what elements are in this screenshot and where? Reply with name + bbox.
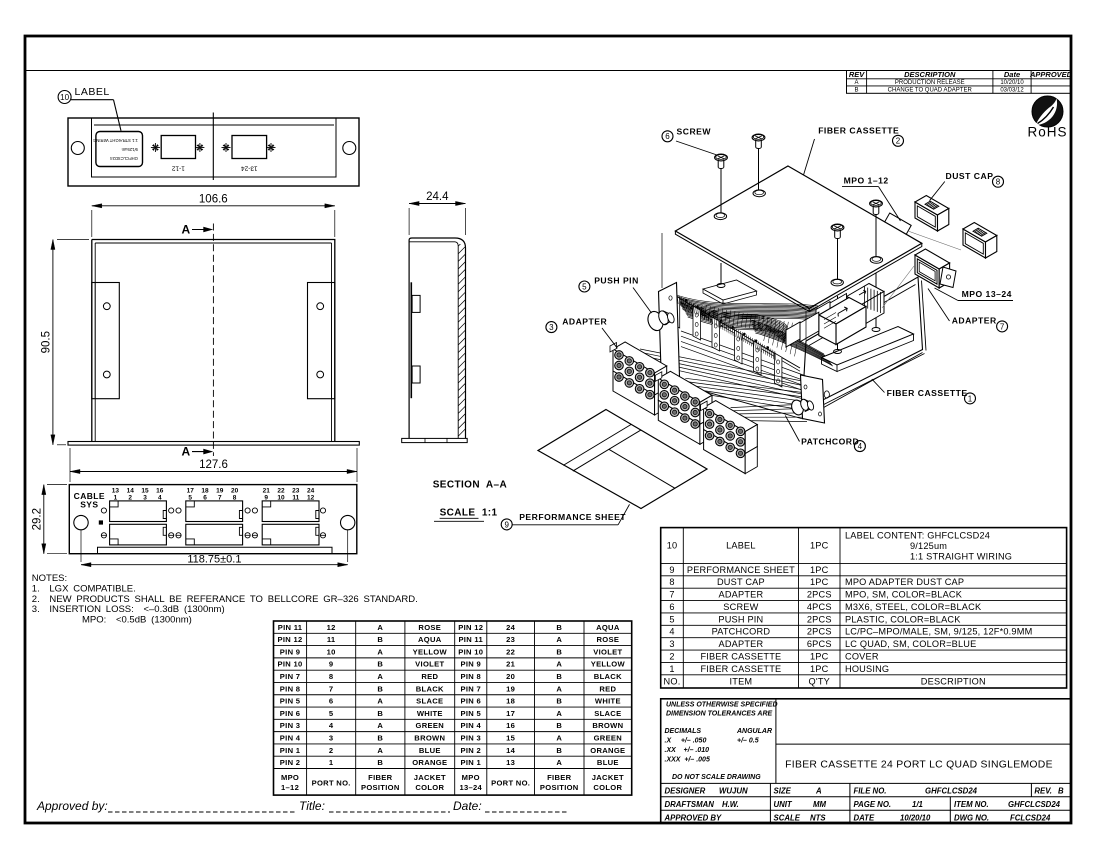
- svg-text:FIBER CASSETTE: FIBER CASSETTE: [700, 664, 781, 674]
- svg-text:A: A: [182, 445, 191, 459]
- svg-text:21: 21: [506, 660, 516, 669]
- svg-text:GREEN: GREEN: [416, 721, 445, 730]
- svg-text:PIN 3: PIN 3: [280, 721, 301, 730]
- svg-text:PLASTIC, COLOR=BLACK: PLASTIC, COLOR=BLACK: [845, 614, 961, 624]
- svg-text:COLOR: COLOR: [593, 783, 622, 792]
- svg-text:REV: REV: [849, 70, 865, 79]
- svg-text:MPO: MPO: [462, 773, 480, 782]
- svg-text:6: 6: [665, 132, 670, 141]
- svg-text:GHFCLCSD24: GHFCLCSD24: [925, 787, 978, 796]
- svg-text:JACKET: JACKET: [414, 773, 446, 782]
- svg-text:1/1: 1/1: [912, 800, 923, 809]
- svg-text:2PCS: 2PCS: [807, 614, 832, 624]
- svg-text:9: 9: [669, 565, 674, 575]
- svg-text:24: 24: [307, 487, 315, 494]
- svg-text:ADAPTER: ADAPTER: [719, 590, 764, 600]
- svg-text:PIN 4: PIN 4: [461, 721, 482, 730]
- svg-text:15: 15: [141, 487, 149, 494]
- svg-text:PAGE NO.: PAGE NO.: [854, 800, 892, 809]
- svg-text:PIN 9: PIN 9: [280, 647, 301, 656]
- svg-text:RoHS: RoHS: [1027, 125, 1067, 140]
- svg-text:B: B: [377, 635, 383, 644]
- svg-text:16: 16: [506, 721, 515, 730]
- svg-text:ANGULAR: ANGULAR: [736, 728, 772, 735]
- svg-text:4PCS: 4PCS: [807, 602, 832, 612]
- svg-text:B: B: [556, 672, 562, 681]
- svg-text:8: 8: [996, 178, 1001, 187]
- svg-text:03/03/12: 03/03/12: [1000, 88, 1024, 94]
- svg-text:17: 17: [187, 487, 195, 494]
- svg-text:A: A: [556, 733, 562, 742]
- svg-text:6: 6: [329, 697, 334, 706]
- svg-text:SYS: SYS: [80, 500, 98, 510]
- svg-text:SECTION A–A: SECTION A–A: [433, 480, 507, 491]
- svg-text:PATCHCORD: PATCHCORD: [712, 627, 771, 637]
- svg-text:2. NEW PRODUCTS SHALL BE REFE: 2. NEW PRODUCTS SHALL BE REFERANCE TO BE…: [32, 594, 418, 605]
- svg-text:PIN 12: PIN 12: [458, 623, 483, 632]
- svg-text:M3X6, STEEL, COLOR=BLACK: M3X6, STEEL, COLOR=BLACK: [845, 602, 982, 612]
- svg-text:B: B: [556, 623, 562, 632]
- svg-text:14: 14: [506, 746, 516, 755]
- svg-text:13: 13: [506, 758, 515, 767]
- svg-text:12: 12: [327, 623, 336, 632]
- svg-text:11: 11: [292, 494, 299, 501]
- svg-text:NOTES:: NOTES:: [32, 573, 67, 584]
- svg-text:BLUE: BLUE: [419, 746, 441, 755]
- svg-text:1PC: 1PC: [810, 541, 829, 551]
- svg-text:23: 23: [506, 635, 515, 644]
- svg-text:1-12: 1-12: [172, 165, 185, 172]
- svg-text:A: A: [377, 697, 383, 706]
- svg-text:WUJUN: WUJUN: [719, 787, 748, 796]
- svg-text:ROSE: ROSE: [418, 623, 441, 632]
- svg-text:SCREW: SCREW: [677, 127, 712, 137]
- svg-text:A: A: [377, 672, 383, 681]
- svg-text:1:1 STRAIGHT WIRING: 1:1 STRAIGHT WIRING: [93, 138, 138, 143]
- svg-text:B: B: [556, 721, 562, 730]
- svg-text:H.W.: H.W.: [722, 800, 739, 809]
- svg-text:10/20/10: 10/20/10: [900, 813, 931, 822]
- svg-text:ADAPTER: ADAPTER: [719, 639, 764, 649]
- svg-text:MPO, SM, COLOR=BLACK: MPO, SM, COLOR=BLACK: [845, 590, 963, 600]
- svg-text:7: 7: [1000, 322, 1005, 331]
- svg-text:POSITION: POSITION: [540, 783, 579, 792]
- svg-text:4: 4: [858, 442, 863, 451]
- svg-text:PERFORMANCE SHEET: PERFORMANCE SHEET: [519, 512, 626, 522]
- svg-text:.XX +/– .010: .XX +/– .010: [665, 747, 710, 754]
- svg-text:LC QUAD, SM, COLOR=BLUE: LC QUAD, SM, COLOR=BLUE: [845, 639, 976, 649]
- svg-text:Date:: Date:: [453, 799, 482, 813]
- svg-text:1–12: 1–12: [281, 783, 299, 792]
- svg-text:8: 8: [669, 577, 674, 587]
- svg-text:PORT NO.: PORT NO.: [491, 778, 530, 787]
- svg-text:24: 24: [506, 623, 516, 632]
- svg-text:23: 23: [292, 487, 300, 494]
- svg-text:COLOR: COLOR: [415, 783, 444, 792]
- svg-text:AQUA: AQUA: [418, 635, 442, 644]
- svg-text:B: B: [377, 733, 383, 742]
- svg-text:PIN 6: PIN 6: [280, 709, 301, 718]
- svg-text:B: B: [377, 709, 383, 718]
- svg-text:Date: Date: [1004, 70, 1020, 79]
- svg-text:YELLOW: YELLOW: [591, 660, 626, 669]
- svg-text:BLUE: BLUE: [597, 758, 619, 767]
- svg-text:FCLCSD24: FCLCSD24: [1010, 813, 1051, 822]
- svg-text:18: 18: [506, 697, 515, 706]
- svg-text:A: A: [556, 684, 562, 693]
- svg-text:PIN 2: PIN 2: [280, 758, 301, 767]
- svg-text:GREEN: GREEN: [594, 733, 623, 742]
- svg-text:COVER: COVER: [845, 651, 879, 661]
- svg-text:MPO 13–24: MPO 13–24: [962, 289, 1012, 299]
- svg-text:UNIT: UNIT: [774, 800, 793, 809]
- svg-text:RED: RED: [421, 672, 438, 681]
- svg-text:DESCRIPTION: DESCRIPTION: [904, 70, 956, 79]
- svg-text:CHANGE TO QUAD ADAPTER: CHANGE TO QUAD ADAPTER: [888, 88, 973, 94]
- svg-text:GHFCLCSD24: GHFCLCSD24: [1008, 800, 1061, 809]
- svg-text:18: 18: [201, 487, 209, 494]
- svg-text:PUSH PIN: PUSH PIN: [594, 276, 639, 286]
- svg-text:B: B: [1058, 787, 1064, 796]
- svg-text:118.75±0.1: 118.75±0.1: [187, 554, 241, 566]
- svg-text:PORT NO.: PORT NO.: [312, 778, 351, 787]
- svg-text:2: 2: [896, 137, 901, 146]
- svg-text:8: 8: [329, 672, 334, 681]
- svg-text:FILE NO.: FILE NO.: [854, 787, 887, 796]
- svg-text:JACKET: JACKET: [592, 773, 624, 782]
- svg-text:3: 3: [549, 323, 554, 332]
- svg-text:MPO ADAPTER DUST CAP: MPO ADAPTER DUST CAP: [845, 577, 964, 587]
- svg-text:10: 10: [60, 93, 69, 102]
- svg-text:PIN 6: PIN 6: [461, 697, 482, 706]
- svg-text:13–24: 13–24: [459, 783, 482, 792]
- svg-text:10: 10: [667, 541, 678, 551]
- svg-text:4: 4: [329, 721, 334, 730]
- svg-text:3. INSERTION LOSS: <–0.3dB (: 3. INSERTION LOSS: <–0.3dB (1300nm): [32, 604, 225, 615]
- svg-text:PIN 12: PIN 12: [278, 635, 303, 644]
- svg-text:NTS: NTS: [810, 813, 826, 822]
- svg-text:B: B: [377, 684, 383, 693]
- svg-text:PIN 10: PIN 10: [278, 660, 303, 669]
- svg-text:20: 20: [506, 672, 515, 681]
- svg-text:9: 9: [504, 520, 509, 529]
- svg-text:4: 4: [669, 627, 674, 637]
- svg-text:B: B: [377, 758, 383, 767]
- svg-text:ITEM NO.: ITEM NO.: [954, 800, 989, 809]
- svg-text:3: 3: [669, 639, 674, 649]
- svg-text:.X +/– .050: .X +/– .050: [665, 738, 707, 745]
- svg-text:9: 9: [264, 494, 268, 501]
- svg-text:FIBER CASSETTE: FIBER CASSETTE: [700, 651, 781, 661]
- svg-text:5: 5: [329, 709, 334, 718]
- svg-text:13-24: 13-24: [241, 165, 258, 172]
- svg-text:1:1 STRAIGHT WIRING: 1:1 STRAIGHT WIRING: [910, 552, 1012, 562]
- svg-text:B: B: [556, 647, 562, 656]
- svg-text:90.5: 90.5: [41, 331, 53, 353]
- svg-text:FIBER CASSETTE: FIBER CASSETTE: [818, 125, 899, 135]
- svg-text:PIN 4: PIN 4: [280, 733, 301, 742]
- svg-text:A: A: [556, 635, 562, 644]
- svg-text:LABEL: LABEL: [726, 541, 756, 551]
- svg-text:ADAPTER: ADAPTER: [952, 316, 997, 326]
- svg-text:9: 9: [329, 660, 334, 669]
- svg-text:1: 1: [968, 394, 973, 403]
- svg-text:7: 7: [218, 494, 222, 501]
- svg-text:A: A: [855, 80, 859, 86]
- svg-text:PIN 11: PIN 11: [278, 623, 303, 632]
- svg-text:DRAFTSMAN: DRAFTSMAN: [665, 800, 715, 809]
- svg-text:DIMENSION TOLERANCES ARE: DIMENSION TOLERANCES ARE: [666, 711, 773, 718]
- svg-text:VIOLET: VIOLET: [593, 647, 622, 656]
- svg-text:9/125um: 9/125um: [121, 147, 138, 152]
- svg-text:16: 16: [156, 487, 164, 494]
- svg-text:24.4: 24.4: [426, 191, 449, 203]
- svg-text:ROSE: ROSE: [596, 635, 619, 644]
- svg-text:2: 2: [329, 746, 334, 755]
- svg-text:MM: MM: [813, 800, 826, 809]
- svg-text:A: A: [556, 758, 562, 767]
- svg-text:APPROVED BY: APPROVED BY: [664, 813, 723, 822]
- svg-text:19: 19: [216, 487, 224, 494]
- svg-text:SLACE: SLACE: [594, 709, 621, 718]
- svg-text:PIN 3: PIN 3: [461, 733, 482, 742]
- svg-text:2PCS: 2PCS: [807, 590, 832, 600]
- svg-text:MPO: <0.5dB (1300nm): MPO: <0.5dB (1300nm): [82, 615, 192, 626]
- svg-text:PRODUCTION RELEASE: PRODUCTION RELEASE: [895, 80, 965, 86]
- svg-text:PIN 9: PIN 9: [461, 660, 482, 669]
- svg-text:PIN 5: PIN 5: [280, 697, 301, 706]
- svg-text:VIOLET: VIOLET: [415, 660, 444, 669]
- svg-text:6PCS: 6PCS: [807, 639, 832, 649]
- svg-text:1PC: 1PC: [810, 577, 829, 587]
- svg-text:2: 2: [128, 494, 132, 501]
- svg-text:PIN 8: PIN 8: [461, 672, 482, 681]
- svg-text:FIBER CASSETTE 24 PORT LC QUAD: FIBER CASSETTE 24 PORT LC QUAD SINGLEMOD…: [785, 760, 1053, 771]
- svg-text:3: 3: [143, 494, 147, 501]
- svg-text:SCALE 1:1: SCALE 1:1: [440, 508, 498, 519]
- svg-text:FIBER: FIBER: [547, 773, 571, 782]
- svg-text:106.6: 106.6: [199, 193, 228, 205]
- svg-text:3: 3: [329, 733, 334, 742]
- svg-text:2PCS: 2PCS: [807, 627, 832, 637]
- svg-text:DESCRIPTION: DESCRIPTION: [921, 677, 986, 687]
- svg-text:DWG NO.: DWG NO.: [954, 813, 989, 822]
- svg-text:DECIMALS: DECIMALS: [665, 728, 702, 735]
- svg-text:5: 5: [188, 494, 192, 501]
- svg-text:A: A: [377, 746, 383, 755]
- svg-text:LABEL CONTENT: GHFCLCSD24: LABEL CONTENT: GHFCLCSD24: [845, 531, 990, 541]
- svg-text:PIN 8: PIN 8: [280, 684, 301, 693]
- svg-text:11: 11: [327, 635, 336, 644]
- svg-text:RED: RED: [599, 684, 616, 693]
- svg-text:19: 19: [506, 684, 515, 693]
- svg-text:Q'TY: Q'TY: [809, 677, 830, 687]
- svg-text:1PC: 1PC: [810, 664, 829, 674]
- svg-text:5: 5: [669, 614, 674, 624]
- svg-text:WHITE: WHITE: [595, 697, 621, 706]
- svg-text:SCALE: SCALE: [774, 813, 801, 822]
- svg-text:14: 14: [127, 487, 135, 494]
- svg-text:10: 10: [277, 494, 285, 501]
- svg-text:PIN 5: PIN 5: [461, 709, 482, 718]
- svg-text:13: 13: [112, 487, 120, 494]
- svg-text:1. LGX COMPATIBLE.: 1. LGX COMPATIBLE.: [32, 583, 136, 594]
- svg-text:PIN 10: PIN 10: [458, 647, 483, 656]
- svg-text:SLACE: SLACE: [416, 697, 443, 706]
- svg-text:LC/PC–MPO/MALE, SM, 9/125, 12F: LC/PC–MPO/MALE, SM, 9/125, 12F*0.9MM: [845, 627, 1032, 637]
- svg-text:SCREW: SCREW: [723, 602, 758, 612]
- svg-text:A: A: [182, 223, 191, 237]
- svg-text:POSITION: POSITION: [361, 783, 400, 792]
- svg-text:SIZE: SIZE: [774, 787, 792, 796]
- svg-text:21: 21: [263, 487, 271, 494]
- svg-text:2: 2: [669, 651, 674, 661]
- svg-text:YELLOW: YELLOW: [413, 647, 448, 656]
- svg-text:HOUSING: HOUSING: [845, 664, 889, 674]
- svg-text:WHITE: WHITE: [417, 709, 443, 718]
- svg-text:FIBER: FIBER: [368, 773, 392, 782]
- svg-text:GHFCLCSD24: GHFCLCSD24: [110, 156, 138, 161]
- svg-text:10/20/10: 10/20/10: [1000, 80, 1024, 86]
- svg-text:20: 20: [231, 487, 239, 494]
- svg-text:9/125um: 9/125um: [910, 541, 947, 551]
- svg-text:DO NOT SCALE DRAWING: DO NOT SCALE DRAWING: [672, 774, 761, 781]
- svg-text:A: A: [556, 660, 562, 669]
- svg-text:12: 12: [307, 494, 315, 501]
- svg-text:LABEL: LABEL: [75, 86, 110, 98]
- svg-text:29.2: 29.2: [32, 508, 44, 530]
- svg-text:PIN 7: PIN 7: [461, 684, 482, 693]
- svg-text:FIBER CASSETTE: FIBER CASSETTE: [887, 388, 968, 398]
- svg-text:PIN 2: PIN 2: [461, 746, 482, 755]
- svg-text:BLACK: BLACK: [594, 672, 622, 681]
- svg-text:4: 4: [158, 494, 162, 501]
- svg-text:1PC: 1PC: [810, 651, 829, 661]
- svg-text:B: B: [377, 660, 383, 669]
- svg-text:A: A: [377, 623, 383, 632]
- svg-text:ITEM: ITEM: [730, 677, 753, 687]
- svg-text:PIN 1: PIN 1: [280, 746, 301, 755]
- svg-text:ADAPTER: ADAPTER: [562, 317, 607, 327]
- svg-text:.XXX +/– .005: .XXX +/– .005: [665, 757, 710, 764]
- svg-text:10: 10: [327, 647, 336, 656]
- svg-text:PATCHCORD: PATCHCORD: [801, 437, 859, 447]
- svg-text:1: 1: [669, 664, 674, 674]
- svg-text:DUST CAP: DUST CAP: [946, 171, 994, 181]
- svg-text:NO.: NO.: [664, 677, 681, 687]
- svg-text:ORANGE: ORANGE: [412, 758, 447, 767]
- svg-text:7: 7: [329, 684, 334, 693]
- svg-text:Approved by:: Approved by:: [36, 799, 108, 813]
- svg-text:PERFORMANCE SHEET: PERFORMANCE SHEET: [687, 565, 795, 575]
- svg-text:22: 22: [277, 487, 285, 494]
- svg-text:PUSH PIN: PUSH PIN: [718, 614, 763, 624]
- svg-text:A: A: [815, 787, 822, 796]
- svg-text:AQUA: AQUA: [596, 623, 620, 632]
- svg-text:DATE: DATE: [854, 813, 875, 822]
- svg-text:BROWN: BROWN: [592, 721, 623, 730]
- svg-text:1: 1: [114, 494, 118, 501]
- svg-text:127.6: 127.6: [199, 459, 228, 471]
- svg-text:8: 8: [233, 494, 237, 501]
- svg-text:B: B: [556, 746, 562, 755]
- svg-text:DUST CAP: DUST CAP: [717, 577, 765, 587]
- svg-text:7: 7: [669, 590, 674, 600]
- svg-text:B: B: [556, 697, 562, 706]
- svg-text:REV.: REV.: [1034, 787, 1051, 796]
- svg-text:6: 6: [669, 602, 674, 612]
- svg-text:6: 6: [203, 494, 207, 501]
- svg-text:DESIGNER: DESIGNER: [665, 787, 706, 796]
- svg-text:UNLESS OTHERWISE SPECIFIED: UNLESS OTHERWISE SPECIFIED: [666, 702, 778, 709]
- svg-text:BLACK: BLACK: [416, 684, 444, 693]
- svg-text:A: A: [556, 709, 562, 718]
- svg-text:1PC: 1PC: [810, 565, 829, 575]
- svg-text:+/– 0.5: +/– 0.5: [737, 738, 759, 745]
- svg-text:A: A: [377, 721, 383, 730]
- svg-text:MPO 1–12: MPO 1–12: [844, 175, 889, 185]
- svg-text:1: 1: [329, 758, 334, 767]
- svg-text:PIN 11: PIN 11: [458, 635, 483, 644]
- svg-text:PIN 7: PIN 7: [280, 672, 301, 681]
- svg-text:Title:: Title:: [299, 799, 325, 813]
- svg-text:17: 17: [506, 709, 515, 718]
- svg-text:ORANGE: ORANGE: [590, 746, 625, 755]
- svg-text:22: 22: [506, 647, 515, 656]
- svg-text:APPROVED: APPROVED: [1029, 70, 1073, 79]
- svg-text:A: A: [377, 647, 383, 656]
- svg-text:15: 15: [506, 733, 516, 742]
- svg-text:PIN 1: PIN 1: [461, 758, 482, 767]
- svg-text:5: 5: [582, 282, 587, 291]
- svg-text:B: B: [855, 88, 859, 94]
- svg-text:BROWN: BROWN: [414, 733, 445, 742]
- svg-text:MPO: MPO: [281, 773, 299, 782]
